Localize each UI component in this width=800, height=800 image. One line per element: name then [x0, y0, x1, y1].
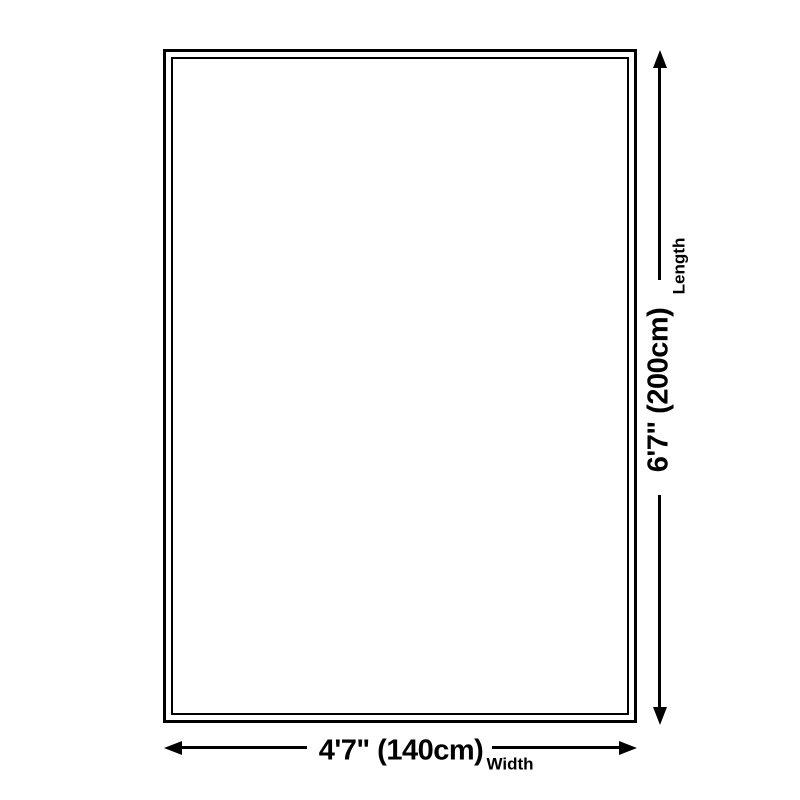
length-dimension-line-lower — [658, 495, 661, 708]
size-dimension-diagram: Length 6'7" (200cm) 4'7" (140cm) Width — [0, 0, 800, 800]
width-dimension-line-right — [492, 746, 619, 749]
length-dimension-line-upper — [658, 66, 661, 280]
product-outline-inner — [171, 57, 629, 715]
arrow-down-icon — [653, 707, 667, 725]
length-label: Length — [671, 238, 688, 295]
arrow-right-icon — [619, 741, 637, 755]
length-value: 6'7" (200cm) — [645, 308, 674, 473]
width-dimension-line-left — [180, 746, 307, 749]
width-label: Width — [486, 756, 533, 773]
width-value: 4'7" (140cm) — [319, 737, 484, 766]
product-outline-outer — [163, 49, 637, 723]
